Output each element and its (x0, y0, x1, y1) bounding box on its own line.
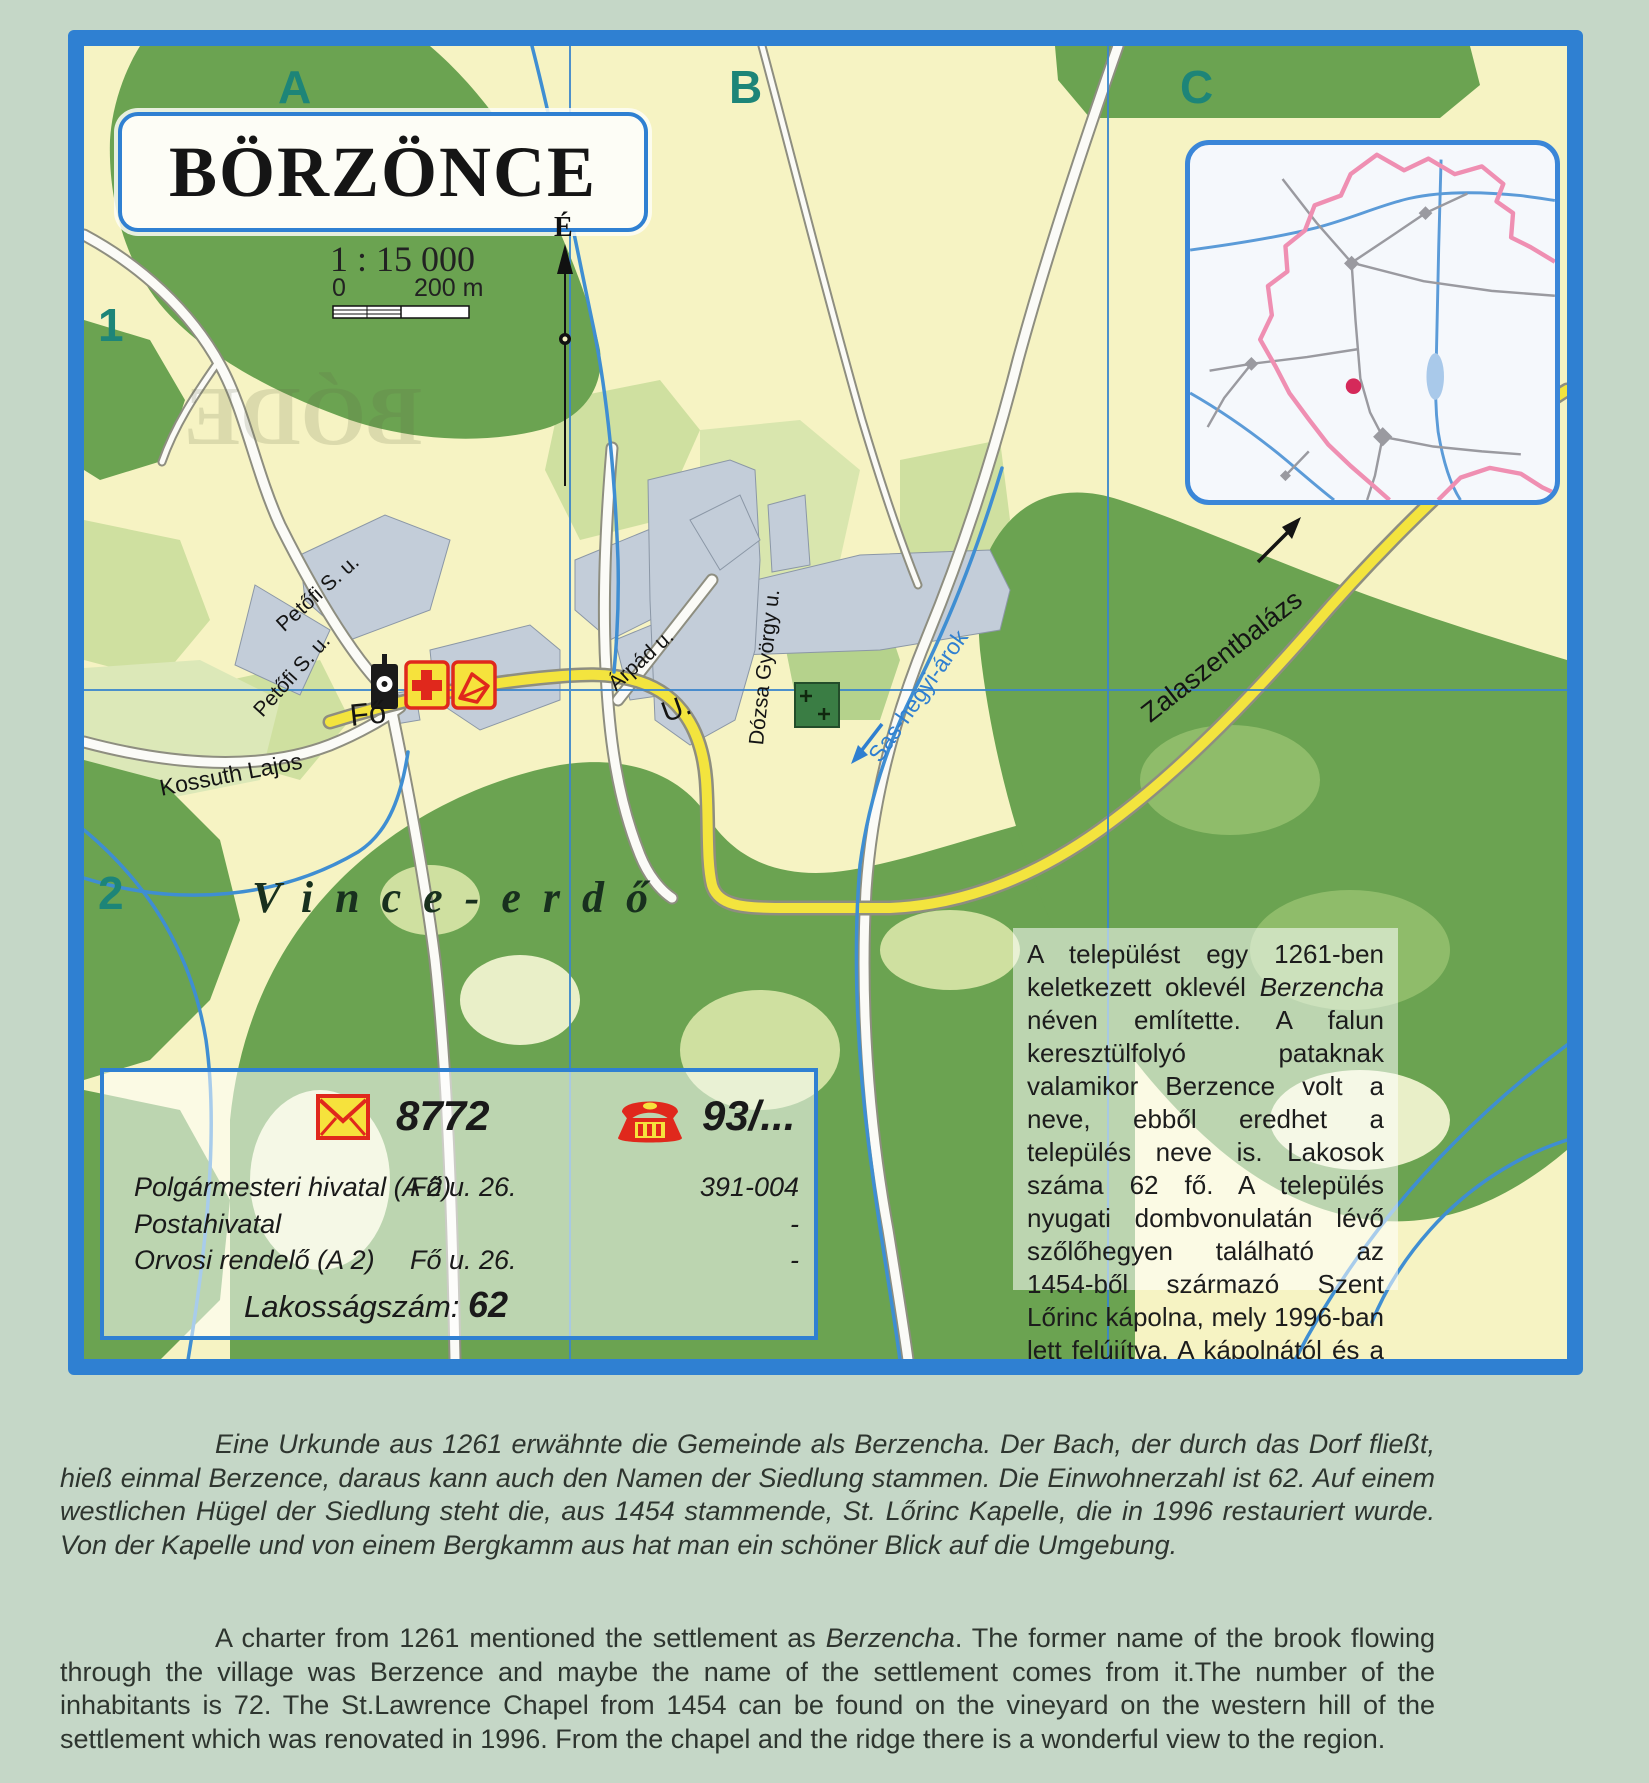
population-label: Lakosságszám: (244, 1289, 459, 1324)
scale-bar (332, 304, 472, 322)
description-de-text: Eine Urkunde aus 1261 erwähnte die Gemei… (60, 1428, 1435, 1562)
grid-col-c: C (1180, 60, 1213, 114)
medical-cross-icon (406, 662, 448, 708)
info-row-phone: 391-004 (649, 1172, 799, 1203)
north-arrow-icon (550, 244, 580, 494)
inset-town-marker (1346, 378, 1362, 394)
town-map-panel: BÓDE A B C 1 2 BÖRZÖNCE 1 : 15 000 0 200… (68, 30, 1583, 1375)
population-value: 62 (468, 1284, 508, 1325)
inset-lake (1426, 353, 1444, 400)
town-info-box: 8772 93/... Polgármesteri hivatal (A 2) … (100, 1068, 818, 1340)
postal-envelope-icon (316, 1094, 370, 1140)
description-hu-box: A települést egy 1261-ben keletkezett ok… (1013, 928, 1398, 1290)
phone-area-code: 93/... (702, 1092, 795, 1140)
scale-zero: 0 (332, 274, 346, 303)
population-line: Lakosságszám: 62 (244, 1284, 508, 1326)
grid-row-2: 2 (98, 866, 124, 920)
description-hu-text: A települést egy 1261-ben keletkezett ok… (1027, 938, 1384, 1359)
info-row-phone: - (649, 1245, 799, 1276)
grid-col-a: A (278, 60, 311, 114)
street-label-fo: Fő (348, 694, 388, 734)
historic-name: Berzencha (1260, 972, 1384, 1002)
info-row-name: Polgármesteri hivatal (A 2) (134, 1172, 414, 1203)
atlas-page: BÓDE A B C 1 2 BÖRZÖNCE 1 : 15 000 0 200… (0, 0, 1649, 1783)
phone-icon (616, 1096, 684, 1144)
info-row-name: Orvosi rendelő (A 2) (134, 1245, 414, 1276)
info-row-phone: - (649, 1209, 799, 1240)
north-label: É (554, 212, 573, 244)
description-en-text: A charter from 1261 mentioned the settle… (60, 1622, 1435, 1756)
postal-code: 8772 (396, 1092, 489, 1140)
map-canvas: BÓDE A B C 1 2 BÖRZÖNCE 1 : 15 000 0 200… (84, 46, 1567, 1359)
cemetery-symbol (795, 683, 839, 727)
info-row-address: Fő u. 26. (410, 1172, 610, 1203)
inset-artwork (1190, 145, 1555, 500)
info-row-address: Fő u. 26. (410, 1245, 610, 1276)
post-office-icon (453, 662, 495, 708)
scale-max: 200 m (414, 274, 483, 303)
forest-label-vince-erdo: Vince-erdő (252, 872, 670, 923)
description-en-block: A charter from 1261 mentioned the settle… (60, 1622, 1435, 1756)
description-de-block: Eine Urkunde aus 1261 erwähnte die Gemei… (60, 1428, 1435, 1562)
historic-name: Berzencha (826, 1623, 955, 1653)
region-inset-map (1185, 140, 1560, 505)
show-through-text: BÓDE (184, 368, 422, 465)
grid-col-b: B (729, 60, 762, 114)
info-row-name: Postahivatal (134, 1209, 414, 1240)
grid-row-1: 1 (98, 298, 124, 352)
town-name: BÖRZÖNCE (169, 131, 597, 214)
